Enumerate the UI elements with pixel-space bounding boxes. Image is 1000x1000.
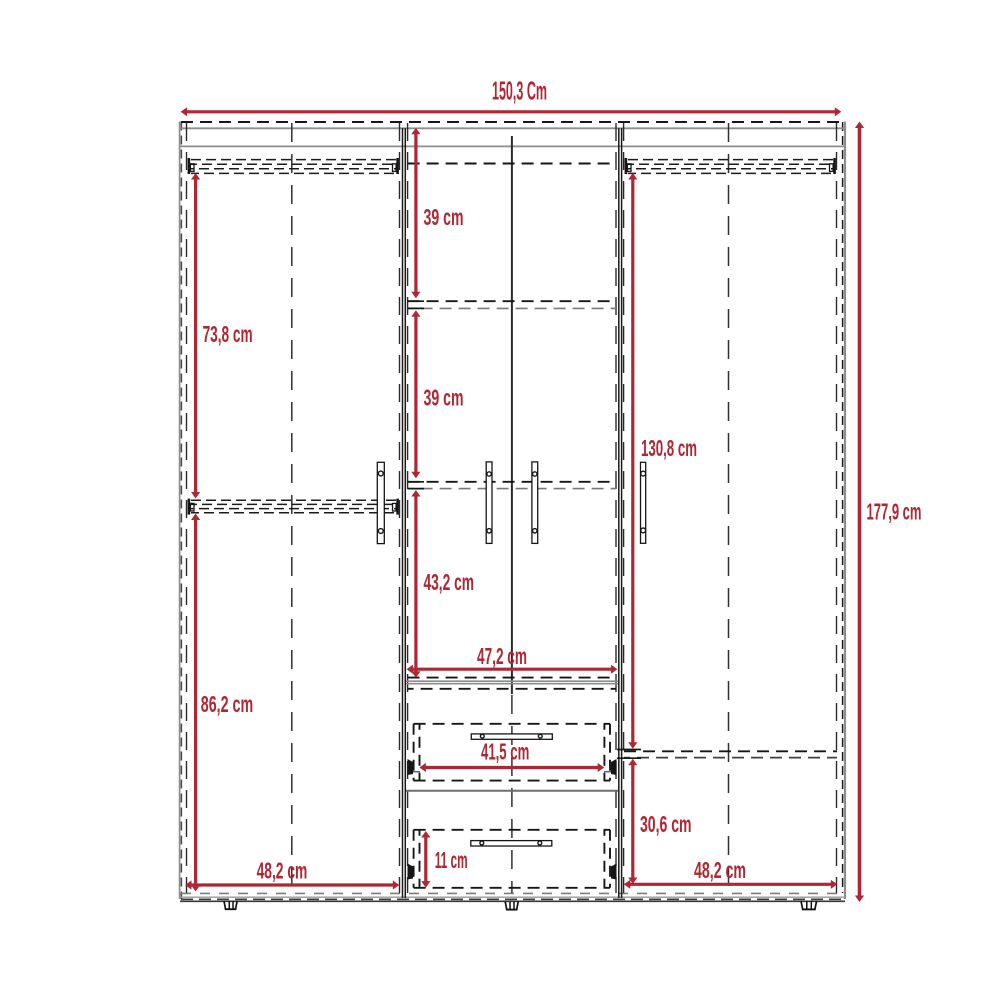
svg-text:41,5 cm: 41,5 cm: [481, 739, 529, 765]
svg-text:150,3 Cm: 150,3 Cm: [492, 76, 547, 106]
svg-text:130,8 cm: 130,8 cm: [641, 435, 697, 461]
svg-text:73,8 cm: 73,8 cm: [203, 321, 253, 347]
svg-text:11 cm: 11 cm: [435, 847, 468, 873]
svg-text:30,6 cm: 30,6 cm: [640, 811, 692, 837]
svg-text:43,2 cm: 43,2 cm: [424, 569, 475, 595]
svg-text:48,2 cm: 48,2 cm: [257, 857, 308, 883]
svg-text:48,2 cm: 48,2 cm: [694, 857, 746, 883]
svg-text:177,9 cm: 177,9 cm: [867, 499, 922, 525]
svg-text:39 cm: 39 cm: [424, 204, 464, 230]
svg-text:86,2 cm: 86,2 cm: [201, 691, 253, 717]
svg-text:39 cm: 39 cm: [424, 385, 464, 411]
svg-text:47,2 cm: 47,2 cm: [477, 643, 527, 669]
